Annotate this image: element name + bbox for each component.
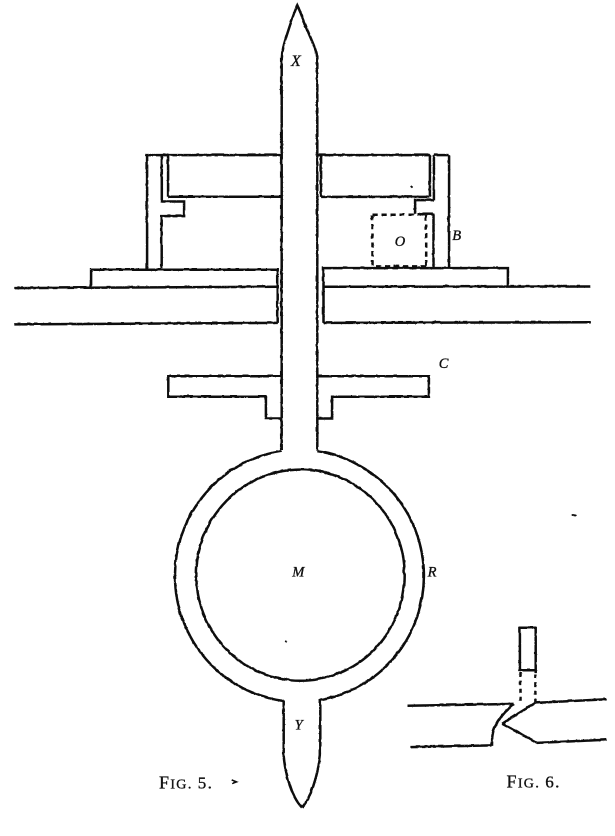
svg-text:M: M bbox=[291, 565, 305, 581]
svg-text:O: O bbox=[395, 234, 406, 250]
svg-text:C: C bbox=[439, 356, 449, 372]
svg-text:B: B bbox=[452, 228, 461, 244]
svg-text:X: X bbox=[290, 53, 302, 70]
svg-text:R: R bbox=[427, 565, 437, 581]
